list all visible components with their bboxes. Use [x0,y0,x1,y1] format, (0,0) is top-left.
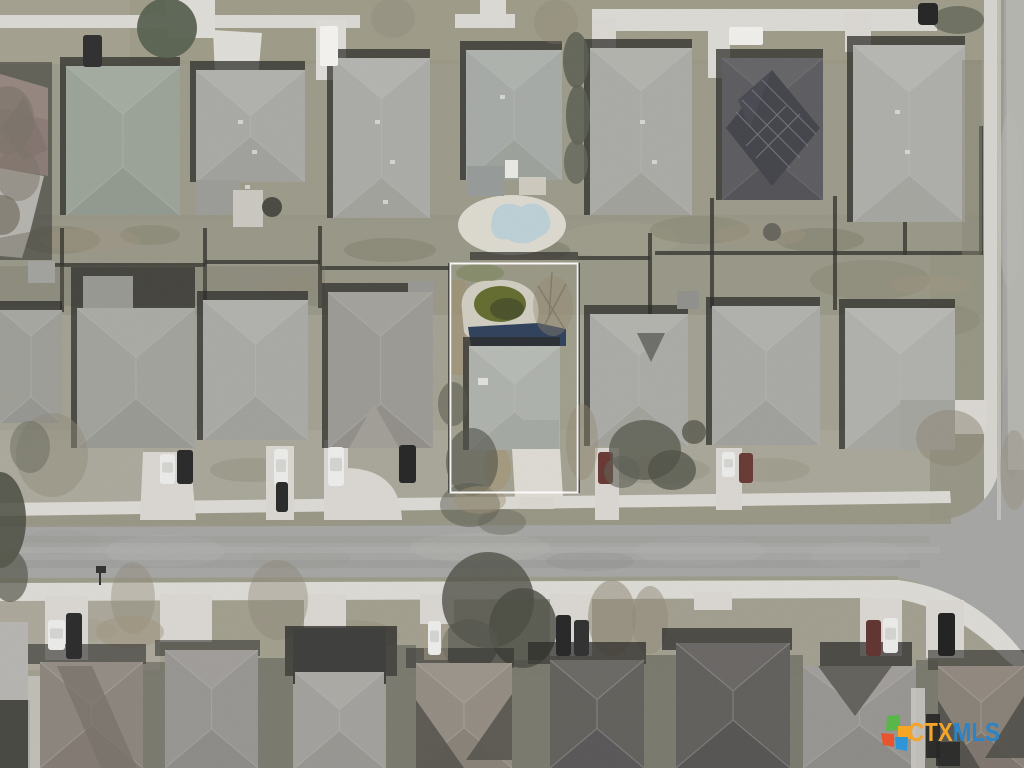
svg-text:CTXMLS: CTXMLS [908,717,1000,747]
